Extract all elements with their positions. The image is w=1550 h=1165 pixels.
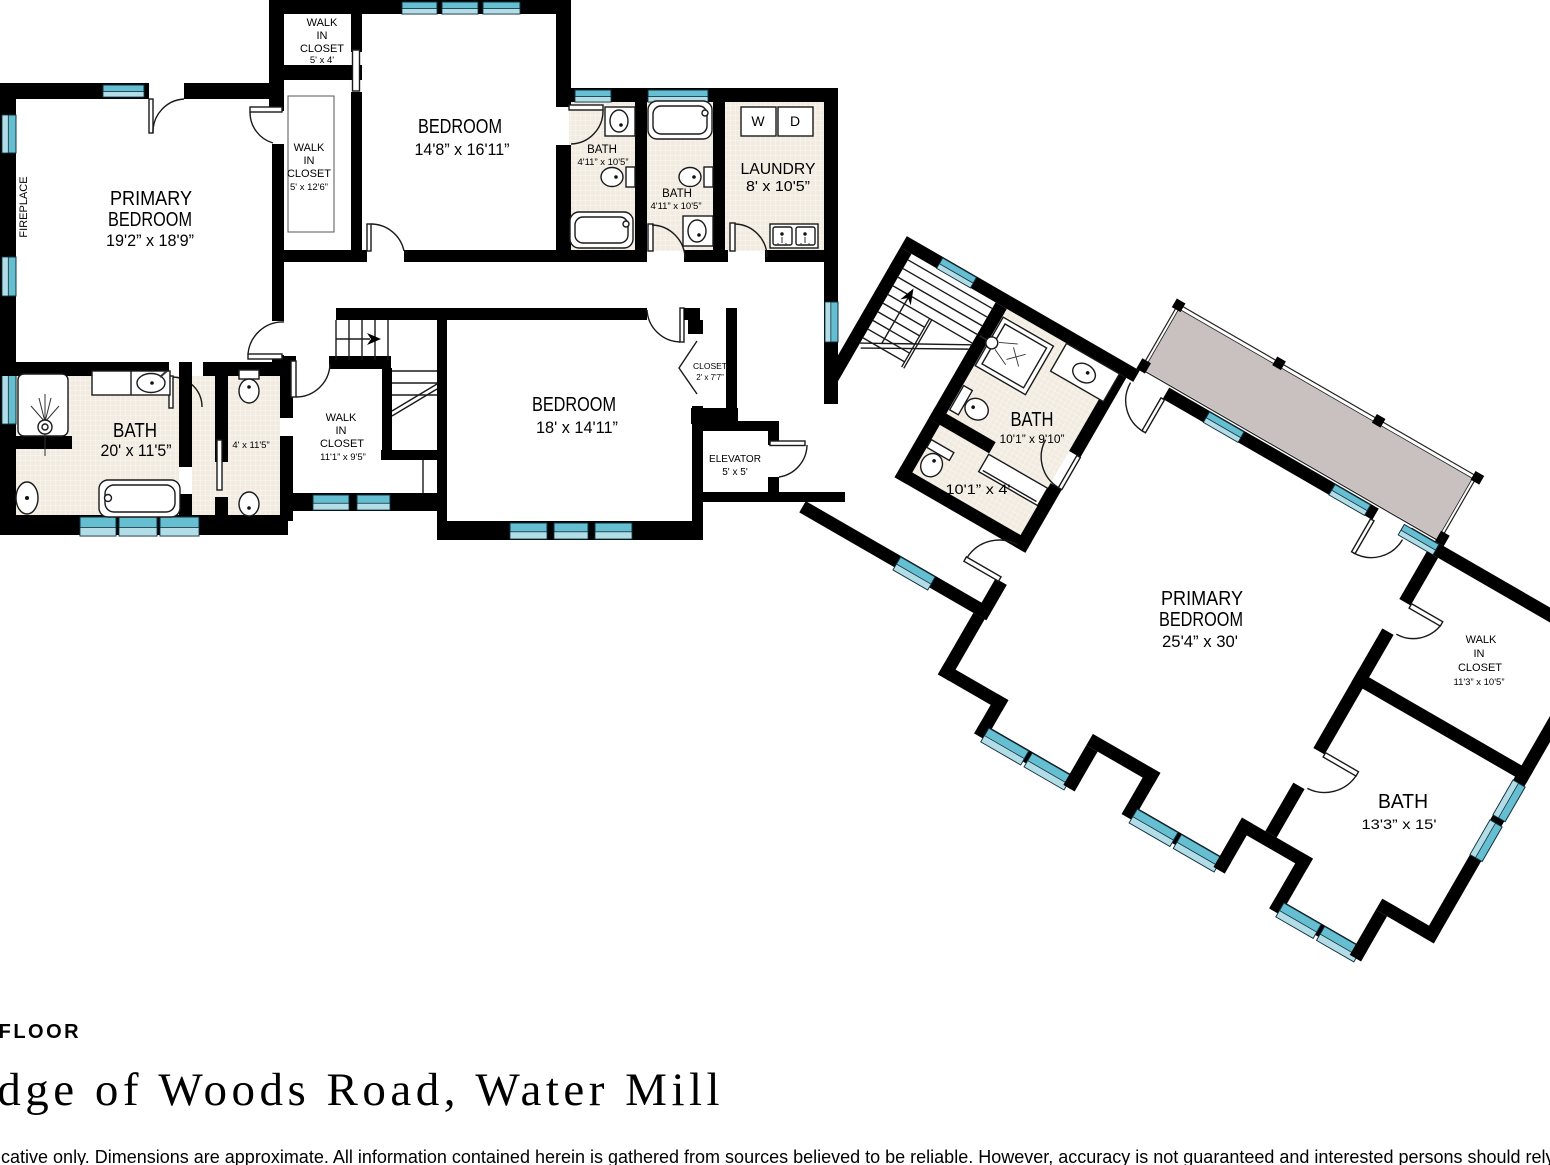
- svg-text:13'3” x 15': 13'3” x 15': [1362, 817, 1437, 832]
- svg-text:CLOSET: CLOSET: [320, 438, 364, 450]
- svg-text:IN: IN: [1474, 648, 1485, 660]
- svg-text:20' x 11'5”: 20' x 11'5”: [101, 441, 172, 460]
- svg-text:10'1” x 9'10”: 10'1” x 9'10”: [1000, 432, 1065, 446]
- svg-text:5' x 4': 5' x 4': [310, 55, 334, 66]
- svg-text:8' x 10'5”: 8' x 10'5”: [746, 178, 810, 195]
- svg-text:4' x 11'5”: 4' x 11'5”: [232, 440, 269, 451]
- svg-text:11'3” x 10'5”: 11'3” x 10'5”: [1454, 677, 1505, 688]
- svg-text:PRIMARY: PRIMARY: [110, 188, 192, 210]
- svg-text:IN: IN: [336, 425, 347, 437]
- svg-text:BEDROOM: BEDROOM: [1159, 609, 1243, 631]
- svg-text:IN: IN: [304, 155, 315, 167]
- svg-text:2' x 7'7”: 2' x 7'7”: [696, 373, 724, 382]
- svg-text:CLOSET: CLOSET: [287, 168, 331, 180]
- svg-text:5' x 5': 5' x 5': [722, 467, 748, 478]
- svg-text:W: W: [751, 113, 765, 129]
- svg-text:CLOSET: CLOSET: [1458, 662, 1502, 674]
- svg-text:19'2” x 18'9”: 19'2” x 18'9”: [106, 231, 194, 250]
- svg-text:11'1” x 9'5”: 11'1” x 9'5”: [320, 452, 366, 463]
- svg-text:BATH: BATH: [1378, 791, 1428, 813]
- svg-text:FIREPLACE: FIREPLACE: [18, 176, 30, 237]
- svg-text:IN: IN: [317, 30, 328, 42]
- svg-text:BATH: BATH: [1011, 409, 1054, 431]
- svg-text:LAUNDRY: LAUNDRY: [741, 161, 816, 178]
- svg-text:BATH: BATH: [587, 144, 617, 156]
- svg-text:BATH: BATH: [113, 420, 157, 442]
- svg-text:WALK: WALK: [326, 412, 357, 424]
- svg-text:SECOND FLOOR: SECOND FLOOR: [0, 1021, 81, 1043]
- svg-text:BEDROOM: BEDROOM: [108, 209, 192, 231]
- svg-text:4'11” x 10'5”: 4'11” x 10'5”: [651, 201, 702, 212]
- svg-text:18' x 14'11”: 18' x 14'11”: [536, 418, 618, 437]
- svg-text:indicative only. Dimensions ar: indicative only. Dimensions are approxim…: [0, 1147, 1550, 1165]
- svg-text:CLOSET: CLOSET: [693, 361, 727, 371]
- svg-text:14'8” x 16'11”: 14'8” x 16'11”: [415, 140, 510, 159]
- svg-text:10'1” x 4': 10'1” x 4': [946, 482, 1011, 497]
- svg-text:WALK: WALK: [294, 142, 325, 154]
- svg-text:BEDROOM: BEDROOM: [418, 116, 502, 138]
- svg-text:4'11” x 10'5”: 4'11” x 10'5”: [578, 157, 629, 168]
- svg-text:WALK: WALK: [1466, 634, 1497, 646]
- svg-text:PRIMARY: PRIMARY: [1161, 588, 1243, 610]
- svg-text:ELEVATOR: ELEVATOR: [709, 454, 761, 465]
- svg-text:CLOSET: CLOSET: [300, 43, 344, 55]
- svg-text:BEDROOM: BEDROOM: [532, 394, 616, 416]
- svg-text:Edge of Woods Road, Water Mill: Edge of Woods Road, Water Mill: [0, 1064, 724, 1116]
- svg-text:25'4” x 30': 25'4” x 30': [1162, 632, 1238, 651]
- svg-text:D: D: [790, 113, 800, 129]
- svg-text:WALK: WALK: [307, 17, 338, 29]
- svg-text:5' x 12'6”: 5' x 12'6”: [290, 182, 328, 193]
- svg-text:BATH: BATH: [662, 188, 692, 200]
